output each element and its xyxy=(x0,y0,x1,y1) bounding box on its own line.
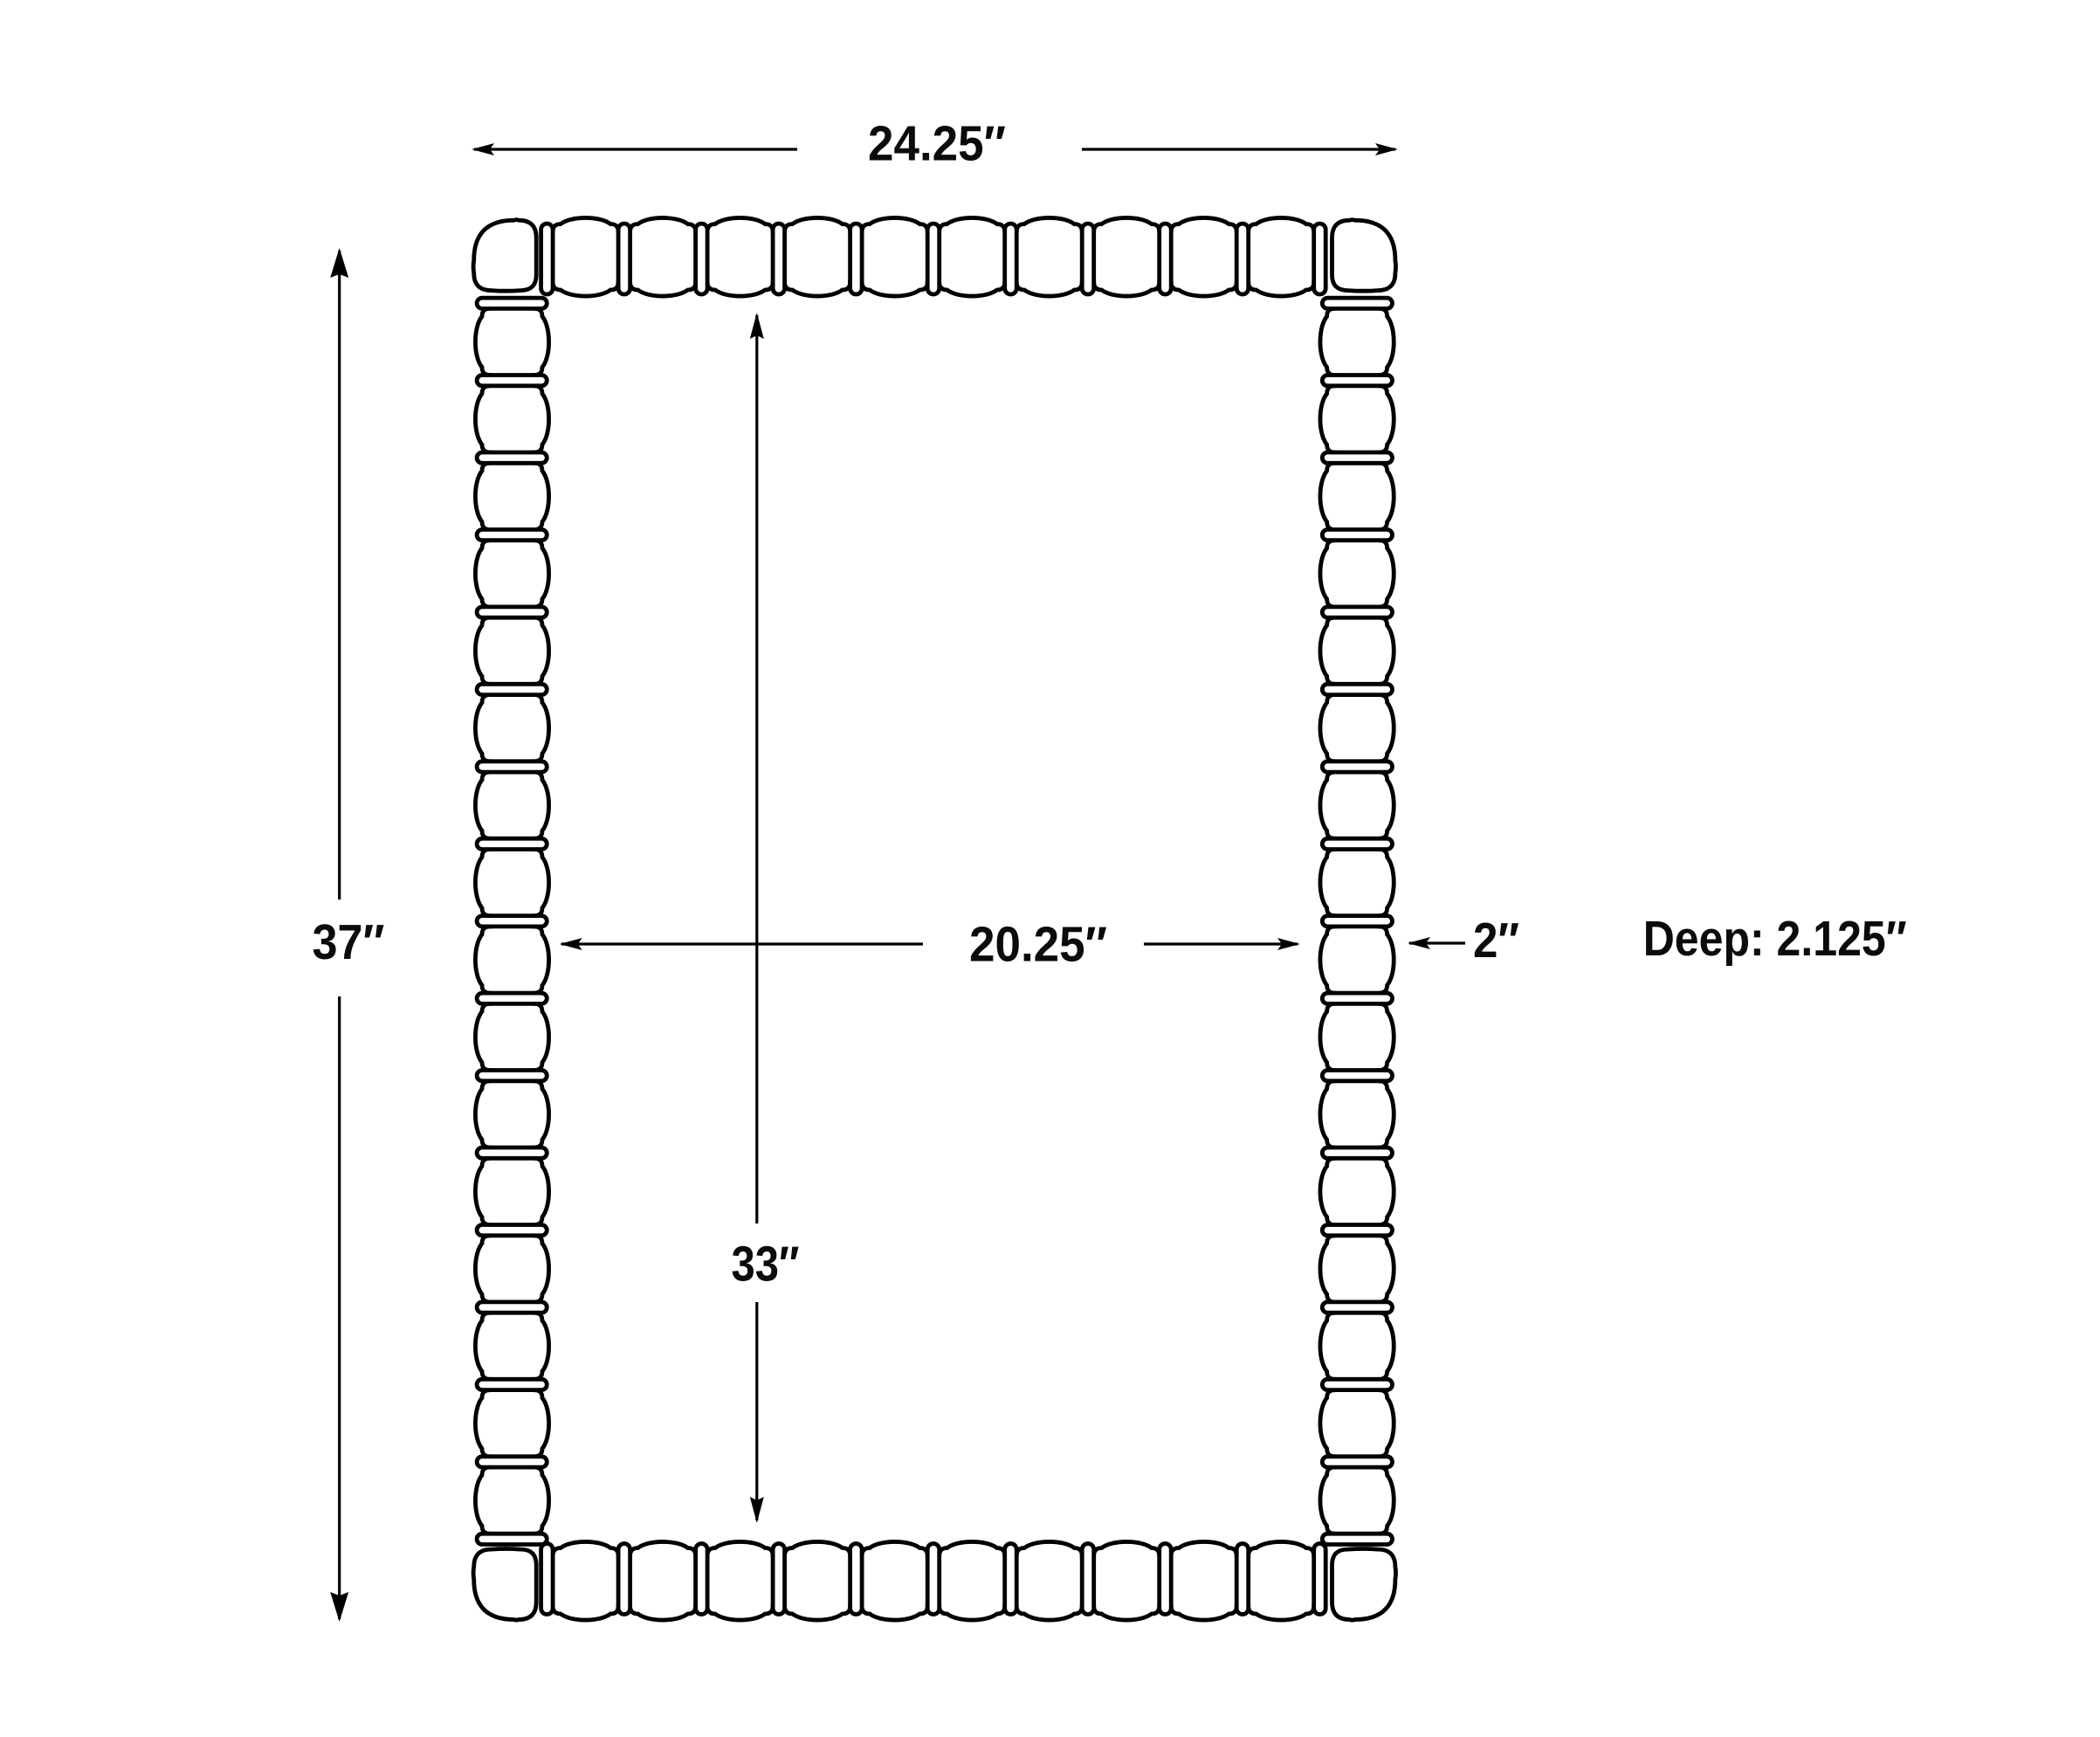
svg-text:33″: 33″ xyxy=(732,1237,800,1292)
svg-text:20.25″: 20.25″ xyxy=(969,917,1107,972)
svg-text:37″: 37″ xyxy=(313,914,385,969)
svg-text:24.25″: 24.25″ xyxy=(868,116,1006,171)
svg-text:2″: 2″ xyxy=(1473,913,1519,968)
svg-text:Deep: 2.125″: Deep: 2.125″ xyxy=(1643,911,1907,966)
